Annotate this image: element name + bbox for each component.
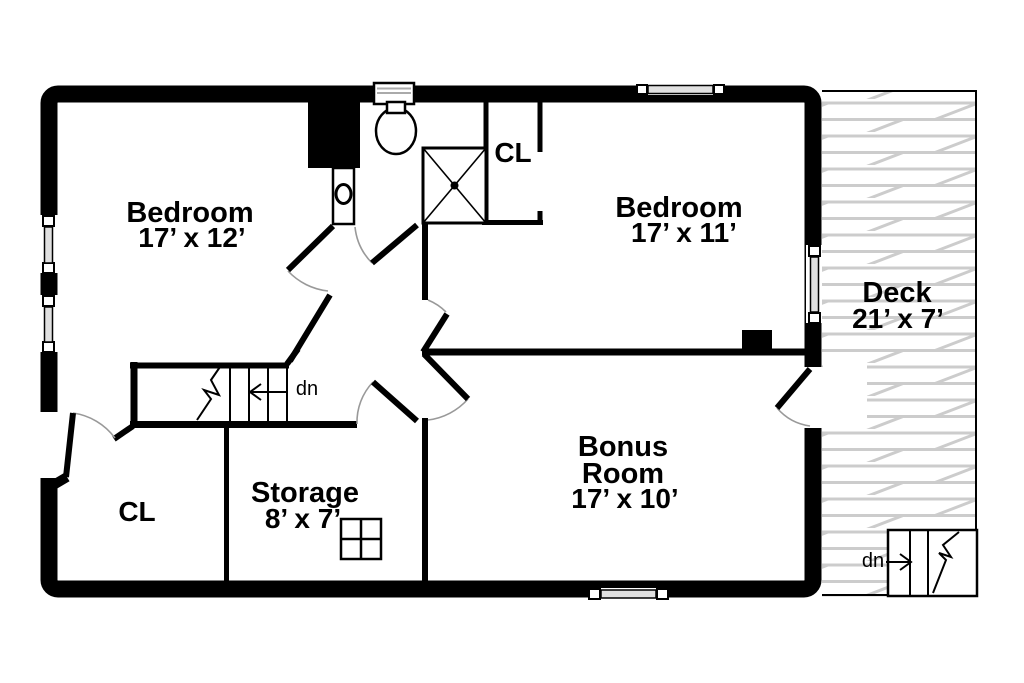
window-top xyxy=(636,83,725,95)
floor-plan-svg: Bedroom 17’ x 12’ Bedroom 17’ x 11’ Bonu… xyxy=(0,0,1024,683)
chimney-post xyxy=(742,330,772,352)
deck-stairs xyxy=(886,530,977,596)
bedroom2-dims: 17’ x 11’ xyxy=(631,217,737,248)
storage-dims: 8’ x 7’ xyxy=(265,503,341,534)
chimney xyxy=(308,88,360,168)
lower-closet-label: CL xyxy=(118,496,155,527)
deck-stairs-dn-label: dn xyxy=(862,550,884,572)
toilet-icon xyxy=(374,83,416,154)
bonus-room-dims: 17’ x 10’ xyxy=(571,483,678,514)
shower-drain xyxy=(451,182,459,190)
bedroom1-dims: 17’ x 12’ xyxy=(138,222,245,253)
deck-door-landing xyxy=(823,360,867,428)
deck-area xyxy=(822,90,977,597)
window-right xyxy=(806,245,822,323)
window-left-2 xyxy=(40,295,58,352)
window-bottom xyxy=(588,588,669,600)
closet-door-opening xyxy=(40,412,58,478)
deck-dims: 21’ x 7’ xyxy=(852,303,944,334)
closet-circle-icon xyxy=(333,168,354,224)
floorplan-canvas: Bedroom 17’ x 12’ Bedroom 17’ x 11’ Bonu… xyxy=(0,0,1024,683)
deck-plank-floor xyxy=(822,90,977,597)
main-stairs-dn-label: dn xyxy=(296,378,318,400)
window-symbol-icon xyxy=(341,519,381,559)
upper-closet-label: CL xyxy=(494,137,531,168)
shower-stall-icon xyxy=(423,148,486,223)
window-left-1 xyxy=(40,215,58,273)
